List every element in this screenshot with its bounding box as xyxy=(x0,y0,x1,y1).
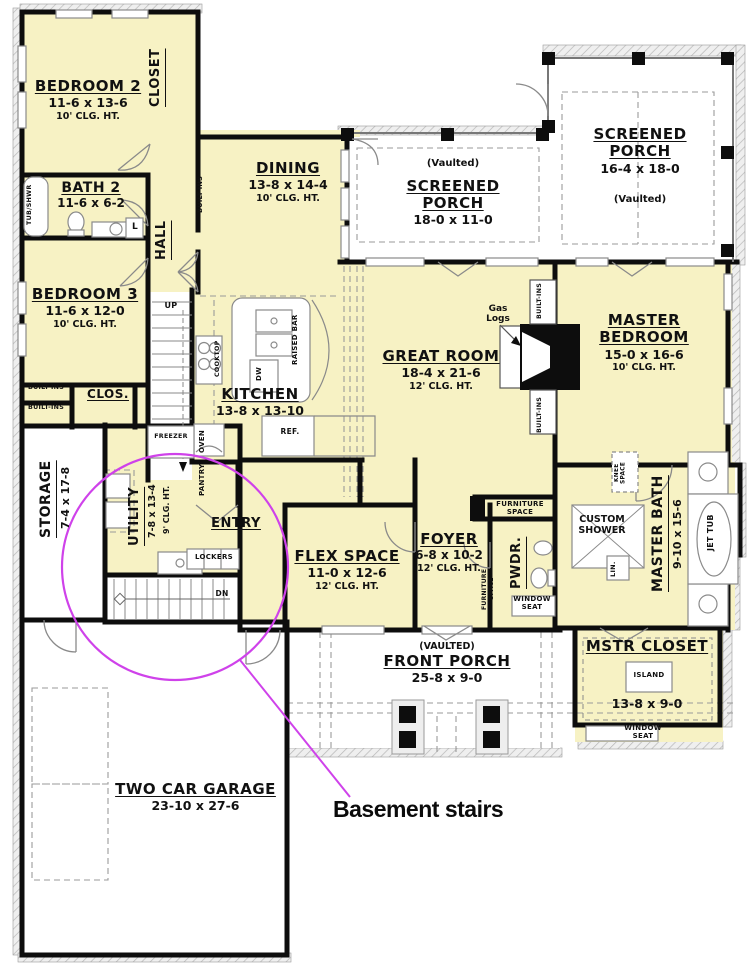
room-ceiling: 9' CLG. HT. xyxy=(162,477,171,543)
room-label-clos3: CLOS. xyxy=(82,388,134,402)
room-label-garage: TWO CAR GARAGE 23-10 x 27-6 xyxy=(108,781,283,814)
room-name: TWO CAR GARAGE xyxy=(108,781,283,798)
room-name: FLEX SPACE xyxy=(288,548,406,565)
feature-label-island: ISLAND xyxy=(626,671,672,679)
room-name: SCREENED PORCH xyxy=(572,126,708,161)
feature-label-dn: DN xyxy=(210,590,234,599)
feature-label-tub-shwr: TUB/SHWR xyxy=(26,176,38,234)
feature-label-cooktop: COOKTOP xyxy=(214,336,226,382)
room-label-kitchen: KITCHEN 13-8 x 13-10 xyxy=(210,386,310,419)
room-name: BATH 2 xyxy=(52,180,130,196)
room-ceiling: 12' CLG. HT. xyxy=(377,382,505,393)
room-ceiling: 12' CLG. HT. xyxy=(408,564,490,575)
feature-label-jet-tub: JET TUB xyxy=(706,508,720,558)
room-label-entry: ENTRY xyxy=(200,517,272,532)
feature-label-built-ins-fp-top: BUILT-INS xyxy=(536,276,549,326)
room-name: KITCHEN xyxy=(210,386,310,403)
room-dims: 6-8 x 10-2 xyxy=(408,549,490,563)
room-label-great-room: GREAT ROOM 18-4 x 21-6 12' CLG. HT. xyxy=(377,348,505,393)
room-name: MASTER BEDROOM xyxy=(578,312,710,347)
room-label-flex-space: FLEX SPACE 11-0 x 12-6 12' CLG. HT. xyxy=(288,548,406,593)
room-dims: 18-4 x 21-6 xyxy=(377,366,505,380)
basement-stairs-text: Basement stairs xyxy=(333,796,553,822)
room-label-utility-ceiling: 9' CLG. HT. xyxy=(162,477,174,543)
basement-stairs-callout: Basement stairs xyxy=(333,796,553,822)
room-label-master-bath-dims: 9-10 x 15-6 xyxy=(672,488,688,580)
room-name: DINING xyxy=(228,160,348,177)
room-label-storage-dims: 7-4 x 17-8 xyxy=(60,452,76,544)
room-name: FRONT PORCH xyxy=(378,653,516,670)
feature-label-lockers: LOCKERS xyxy=(189,553,239,561)
room-name: CLOSET xyxy=(149,32,164,124)
feature-label-furniture-space-top: FURNITURE SPACE xyxy=(492,500,548,516)
feature-label-furniture-space-side: FURNITURE SPACE xyxy=(482,560,500,618)
room-label-screened-porch-center: (Vaulted) SCREENED PORCH 18-0 x 11-0 xyxy=(382,158,524,227)
room-label-bath2: BATH 2 11-6 x 6-2 xyxy=(52,180,130,211)
room-label-hall: HALL xyxy=(155,212,175,268)
room-name: UTILITY xyxy=(128,477,143,555)
feature-label-knee-space: KNEE SPACE xyxy=(614,455,630,491)
room-label-master-bedroom: MASTER BEDROOM 15-0 x 16-6 10' CLG. HT. xyxy=(578,312,710,374)
room-dims: 13-8 x 14-4 xyxy=(228,178,348,192)
room-note: (Vaulted) xyxy=(382,158,524,170)
room-dims: 7-8 x 13-4 xyxy=(148,474,159,548)
room-dims: 9-10 x 15-6 xyxy=(672,488,685,580)
room-label-front-porch: FRONT PORCH 25-8 x 9-0 xyxy=(378,653,516,686)
room-name: STORAGE xyxy=(38,442,54,557)
feature-label-built-ins-fp-bottom: BUILT-INS xyxy=(536,390,549,440)
room-name: HALL xyxy=(155,212,170,268)
room-label-powder: PWDR. xyxy=(510,533,530,593)
room-name: BEDROOM 3 xyxy=(22,286,148,303)
room-label-custom-shower: CUSTOM SHOWER xyxy=(570,515,634,537)
room-name: MSTR CLOSET xyxy=(583,638,711,655)
feature-label-pantry: PANTRY xyxy=(198,460,210,500)
room-ceiling: 10' CLG. HT. xyxy=(228,194,348,205)
feature-label-gas-logs: Gas Logs xyxy=(478,304,518,325)
feature-label-window-seat-powder: WINDOW SEAT xyxy=(506,595,558,611)
room-dims: 16-4 x 18-0 xyxy=(572,162,708,176)
room-dims: 13-8 x 9-0 xyxy=(598,697,696,711)
room-label-utility-name: UTILITY xyxy=(128,477,148,555)
feature-label-oven: OVEN xyxy=(198,426,210,456)
room-name: BEDROOM 2 xyxy=(28,78,148,95)
room-dims: 11-6 x 6-2 xyxy=(52,197,130,211)
room-name: PWDR. xyxy=(510,533,525,593)
room-dims: 18-0 x 11-0 xyxy=(382,213,524,227)
room-label-dining: DINING 13-8 x 14-4 10' CLG. HT. xyxy=(228,160,348,205)
feature-label-linen: L xyxy=(128,222,142,232)
room-label-master-closet-dims: 13-8 x 9-0 xyxy=(598,696,696,711)
feature-label-dishwasher: DW xyxy=(255,360,267,388)
room-name: SCREENED PORCH xyxy=(382,178,524,213)
room-dims: 15-0 x 16-6 xyxy=(578,348,710,362)
feature-label-up: UP xyxy=(158,301,184,310)
feature-label-freezer: FREEZER xyxy=(149,433,193,440)
room-dims: 25-8 x 9-0 xyxy=(378,671,516,685)
room-dims: 11-0 x 12-6 xyxy=(288,566,406,580)
room-dims: 11-6 x 13-6 xyxy=(28,96,148,110)
room-ceiling: 10' CLG. HT. xyxy=(578,363,710,374)
room-name: FOYER xyxy=(408,531,490,548)
feature-label-raised-bar: RAISED BAR xyxy=(291,312,304,368)
room-note: (Vaulted) xyxy=(572,194,708,206)
room-dims: 13-8 x 13-10 xyxy=(210,404,310,418)
room-label-storage-name: STORAGE xyxy=(38,442,60,557)
feature-label-built-ins-1: BUILT-INS xyxy=(22,384,70,391)
room-dims: 11-6 x 12-0 xyxy=(22,304,148,318)
room-label-master-bath-name: MASTER BATH xyxy=(650,470,672,598)
room-label-bedroom3: BEDROOM 3 11-6 x 12-0 10' CLG. HT. xyxy=(22,286,148,331)
room-name: CLOS. xyxy=(82,388,134,402)
room-name: MASTER BATH xyxy=(650,470,666,598)
feature-label-refrigerator: REF. xyxy=(271,428,309,437)
feature-label-lin: LIN. xyxy=(610,558,622,580)
room-dims: 7-4 x 17-8 xyxy=(60,452,73,544)
room-ceiling: 12' CLG. HT. xyxy=(288,582,406,593)
room-label-foyer: FOYER 6-8 x 10-2 12' CLG. HT. xyxy=(408,531,490,575)
room-label-master-closet: MSTR CLOSET xyxy=(583,638,711,655)
room-label-screened-porch-right: SCREENED PORCH 16-4 x 18-0 (Vaulted) xyxy=(572,126,708,205)
room-name: ENTRY xyxy=(200,517,272,532)
feature-label-window-seat-closet: WINDOW SEAT xyxy=(614,724,672,740)
floor-plan: BEDROOM 2 11-6 x 13-6 10' CLG. HT. CLOSE… xyxy=(0,0,750,973)
feature-label-built-ins-dining: BUILT-INS xyxy=(197,167,211,221)
room-label-utility-dims: 7-8 x 13-4 xyxy=(148,474,162,548)
room-ceiling: 10' CLG. HT. xyxy=(22,320,148,331)
room-name: CUSTOM SHOWER xyxy=(570,515,634,537)
room-ceiling: 10' CLG. HT. xyxy=(28,112,148,123)
room-label-bedroom2: BEDROOM 2 11-6 x 13-6 10' CLG. HT. xyxy=(28,78,148,123)
room-dims: 23-10 x 27-6 xyxy=(108,799,283,813)
room-name: GREAT ROOM xyxy=(377,348,505,365)
feature-label-built-ins-2: BUILT-INS xyxy=(24,404,68,411)
room-label-closet2: CLOSET xyxy=(149,32,169,124)
